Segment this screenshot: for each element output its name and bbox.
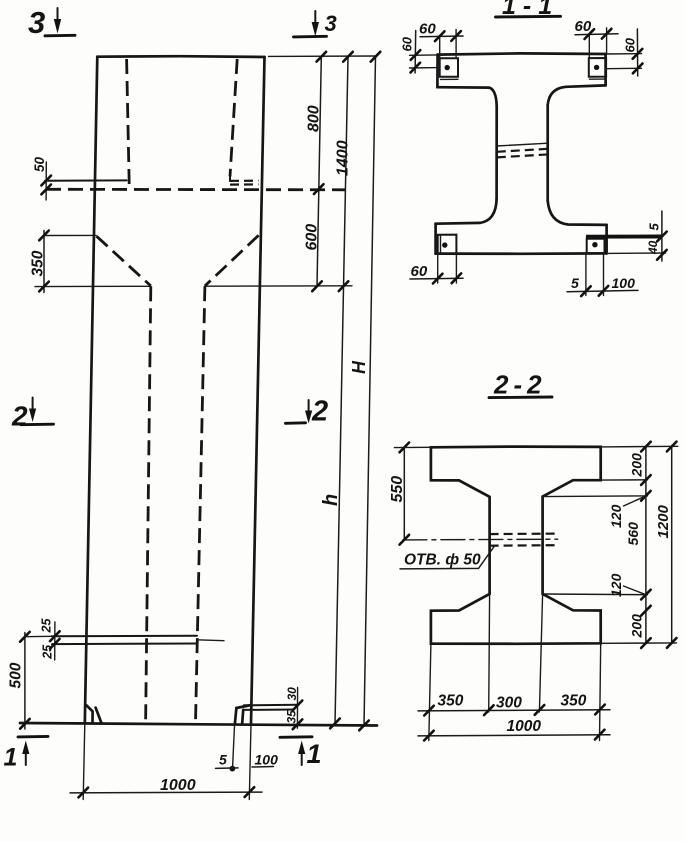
svg-text:100: 100	[255, 752, 279, 768]
svg-text:350: 350	[561, 693, 587, 710]
svg-text:3: 3	[325, 11, 337, 36]
svg-text:60: 60	[419, 21, 436, 38]
svg-text:30: 30	[285, 687, 299, 701]
svg-text:25: 25	[40, 618, 54, 634]
svg-text:120: 120	[608, 573, 624, 597]
svg-text:550: 550	[389, 476, 406, 503]
svg-text:1000: 1000	[507, 718, 542, 735]
svg-text:5: 5	[219, 752, 227, 768]
svg-text:60: 60	[411, 263, 428, 280]
svg-text:800: 800	[306, 105, 323, 132]
svg-text:25: 25	[41, 644, 55, 660]
svg-text:350: 350	[438, 693, 464, 710]
svg-text:40: 40	[646, 240, 660, 255]
svg-text:100: 100	[612, 275, 636, 291]
svg-text:1: 1	[4, 744, 18, 772]
svg-text:200: 200	[629, 453, 645, 478]
svg-text:60: 60	[400, 36, 415, 51]
svg-text:5: 5	[647, 223, 662, 231]
svg-text:350: 350	[30, 250, 47, 276]
svg-text:120: 120	[608, 504, 624, 528]
svg-text:600: 600	[304, 224, 321, 251]
svg-text:500: 500	[8, 662, 25, 688]
svg-text:OTB. ф 50: OTB. ф 50	[404, 552, 481, 569]
svg-text:2: 2	[11, 401, 28, 432]
svg-text:560: 560	[625, 522, 641, 546]
svg-text:35: 35	[285, 710, 299, 724]
svg-text:1: 1	[307, 739, 322, 769]
svg-text:50: 50	[32, 156, 47, 172]
svg-text:1400: 1400	[335, 140, 352, 176]
svg-text:2-2: 2-2	[493, 370, 547, 400]
svg-text:h: h	[320, 494, 342, 506]
svg-text:300: 300	[496, 695, 522, 712]
svg-text:H: H	[349, 360, 369, 374]
svg-text:1000: 1000	[160, 777, 196, 794]
svg-text:2: 2	[311, 396, 328, 428]
svg-text:1200: 1200	[655, 504, 672, 538]
svg-text:60: 60	[623, 37, 638, 52]
svg-text:5: 5	[571, 275, 579, 291]
svg-text:60: 60	[575, 18, 592, 35]
svg-text:200: 200	[629, 614, 645, 639]
svg-text:3: 3	[28, 5, 45, 40]
